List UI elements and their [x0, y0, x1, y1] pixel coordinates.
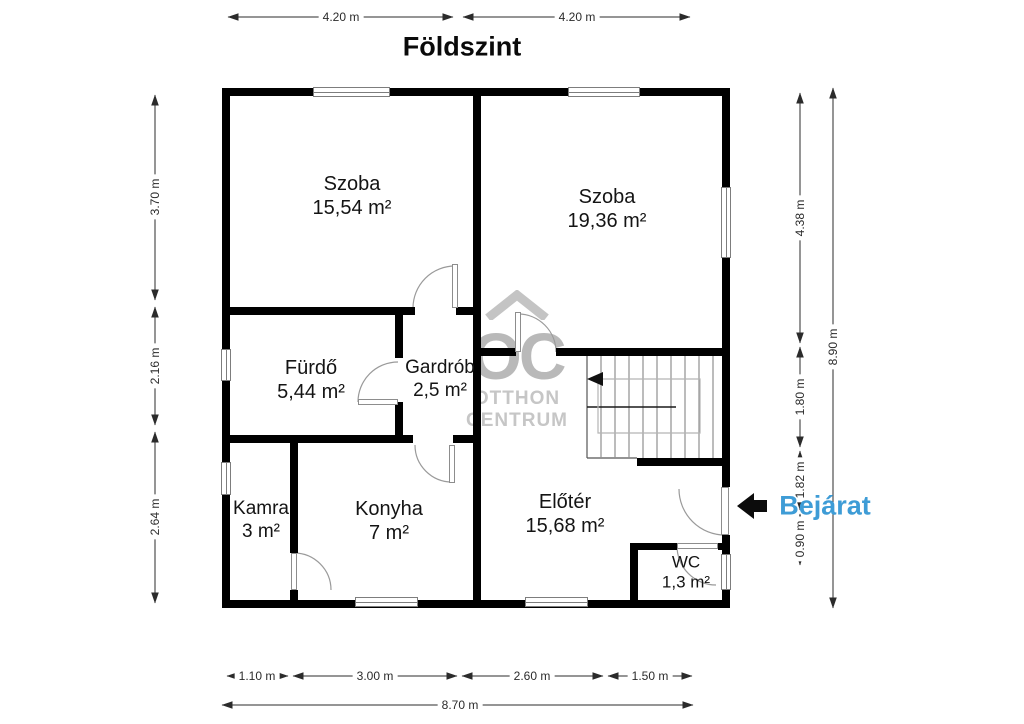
window [721, 187, 731, 258]
door-leaf [677, 543, 718, 549]
dim-right-1: 4.38 m [793, 196, 807, 241]
window [355, 597, 418, 607]
door-arc [518, 314, 556, 352]
wall-segment [222, 600, 730, 608]
dim-top-1: 4.20 m [319, 10, 364, 24]
wall-segment [290, 590, 298, 600]
dim-right-4: 0.90 m [793, 517, 807, 562]
dim-left-3: 2.64 m [148, 495, 162, 540]
dim-left-2: 2.16 m [148, 344, 162, 389]
dim-left-1: 3.70 m [148, 175, 162, 220]
wall-segment [222, 435, 413, 443]
wall-segment [222, 88, 730, 96]
dim-right-total: 8.90 m [826, 325, 840, 370]
wall-segment [395, 315, 403, 358]
staircase [587, 356, 713, 458]
room-label-kamra: Kamra3 m² [233, 498, 289, 544]
dim-bottom-total: 8.70 m [438, 698, 483, 712]
room-label-szoba-2: Szoba19,36 m² [568, 185, 647, 233]
dim-right-2: 1.80 m [793, 375, 807, 420]
dim-bottom-3: 2.60 m [510, 669, 555, 683]
wall-segment [473, 96, 481, 600]
room-label-wc: WC1,3 m² [662, 553, 710, 594]
page-title: Földszint [403, 32, 521, 63]
wall-segment [395, 402, 403, 435]
dim-bottom-1: 1.10 m [235, 669, 280, 683]
door-arc [413, 266, 455, 308]
room-label-konyha: Konyha7 m² [355, 497, 423, 545]
wall-segment [630, 543, 638, 600]
wall-segment [722, 96, 730, 487]
wall-segment [481, 348, 516, 356]
room-label-szoba-1: Szoba15,54 m² [313, 172, 392, 220]
wall-segment [456, 307, 473, 315]
window [313, 87, 390, 97]
door-leaf [449, 445, 455, 483]
door-arc [679, 489, 725, 535]
door-leaf [452, 264, 458, 308]
door-arc [415, 445, 452, 482]
door-leaf [515, 312, 521, 352]
dim-top-2: 4.20 m [555, 10, 600, 24]
entrance-label: Bejárat [779, 491, 871, 522]
entrance-door-leaf [721, 487, 729, 535]
room-label-furdo: Fürdő5,44 m² [277, 356, 345, 404]
window [721, 554, 731, 590]
wall-segment [290, 443, 298, 553]
entrance-arrow-icon [737, 493, 767, 519]
stair-direction-arrow-icon [587, 372, 603, 386]
dim-bottom-4: 1.50 m [628, 669, 673, 683]
dim-bottom-2: 3.00 m [353, 669, 398, 683]
wall-segment [222, 96, 230, 600]
window [525, 597, 588, 607]
wall-segment [556, 348, 722, 356]
window [568, 87, 640, 97]
door-leaf [291, 553, 297, 590]
wall-segment [718, 543, 722, 550]
room-label-eloter: Előtér15,68 m² [526, 490, 605, 538]
wall-segment [453, 435, 473, 443]
window [221, 462, 231, 495]
door-arc [358, 362, 398, 402]
door-leaf [358, 399, 398, 405]
wall-segment [638, 543, 677, 550]
door-arc [294, 553, 331, 590]
floor-plan: OC OTTHON CENTRUM [0, 0, 1024, 724]
window [221, 349, 231, 381]
wall-segment [222, 307, 415, 315]
room-label-gardrob: Gardrób2,5 m² [405, 357, 475, 403]
wall-segment [637, 458, 722, 466]
